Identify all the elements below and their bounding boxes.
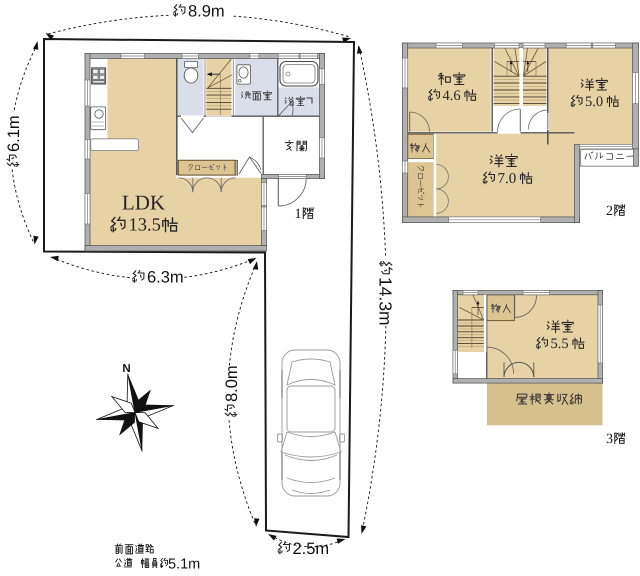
svg-text:8.9m: 8.9m bbox=[188, 3, 225, 21]
svg-text:7.0: 7.0 bbox=[498, 171, 517, 187]
svg-text:N: N bbox=[122, 363, 130, 375]
svg-text:13.5: 13.5 bbox=[129, 216, 161, 236]
svg-text:3: 3 bbox=[606, 432, 613, 447]
svg-text:1: 1 bbox=[295, 207, 302, 222]
svg-text:2: 2 bbox=[606, 204, 613, 219]
svg-text:4.6: 4.6 bbox=[443, 88, 461, 104]
svg-text:LDK: LDK bbox=[122, 191, 165, 215]
svg-text:5.0: 5.0 bbox=[585, 94, 603, 110]
svg-text:2.5m: 2.5m bbox=[293, 540, 330, 558]
svg-text:14.3m: 14.3m bbox=[376, 277, 396, 326]
svg-text:6.3m: 6.3m bbox=[147, 269, 184, 287]
svg-text:6.1m: 6.1m bbox=[5, 115, 23, 152]
svg-text:8.0m: 8.0m bbox=[223, 365, 241, 402]
svg-text:5.5: 5.5 bbox=[551, 336, 569, 352]
svg-text:5.1m: 5.1m bbox=[168, 557, 200, 573]
